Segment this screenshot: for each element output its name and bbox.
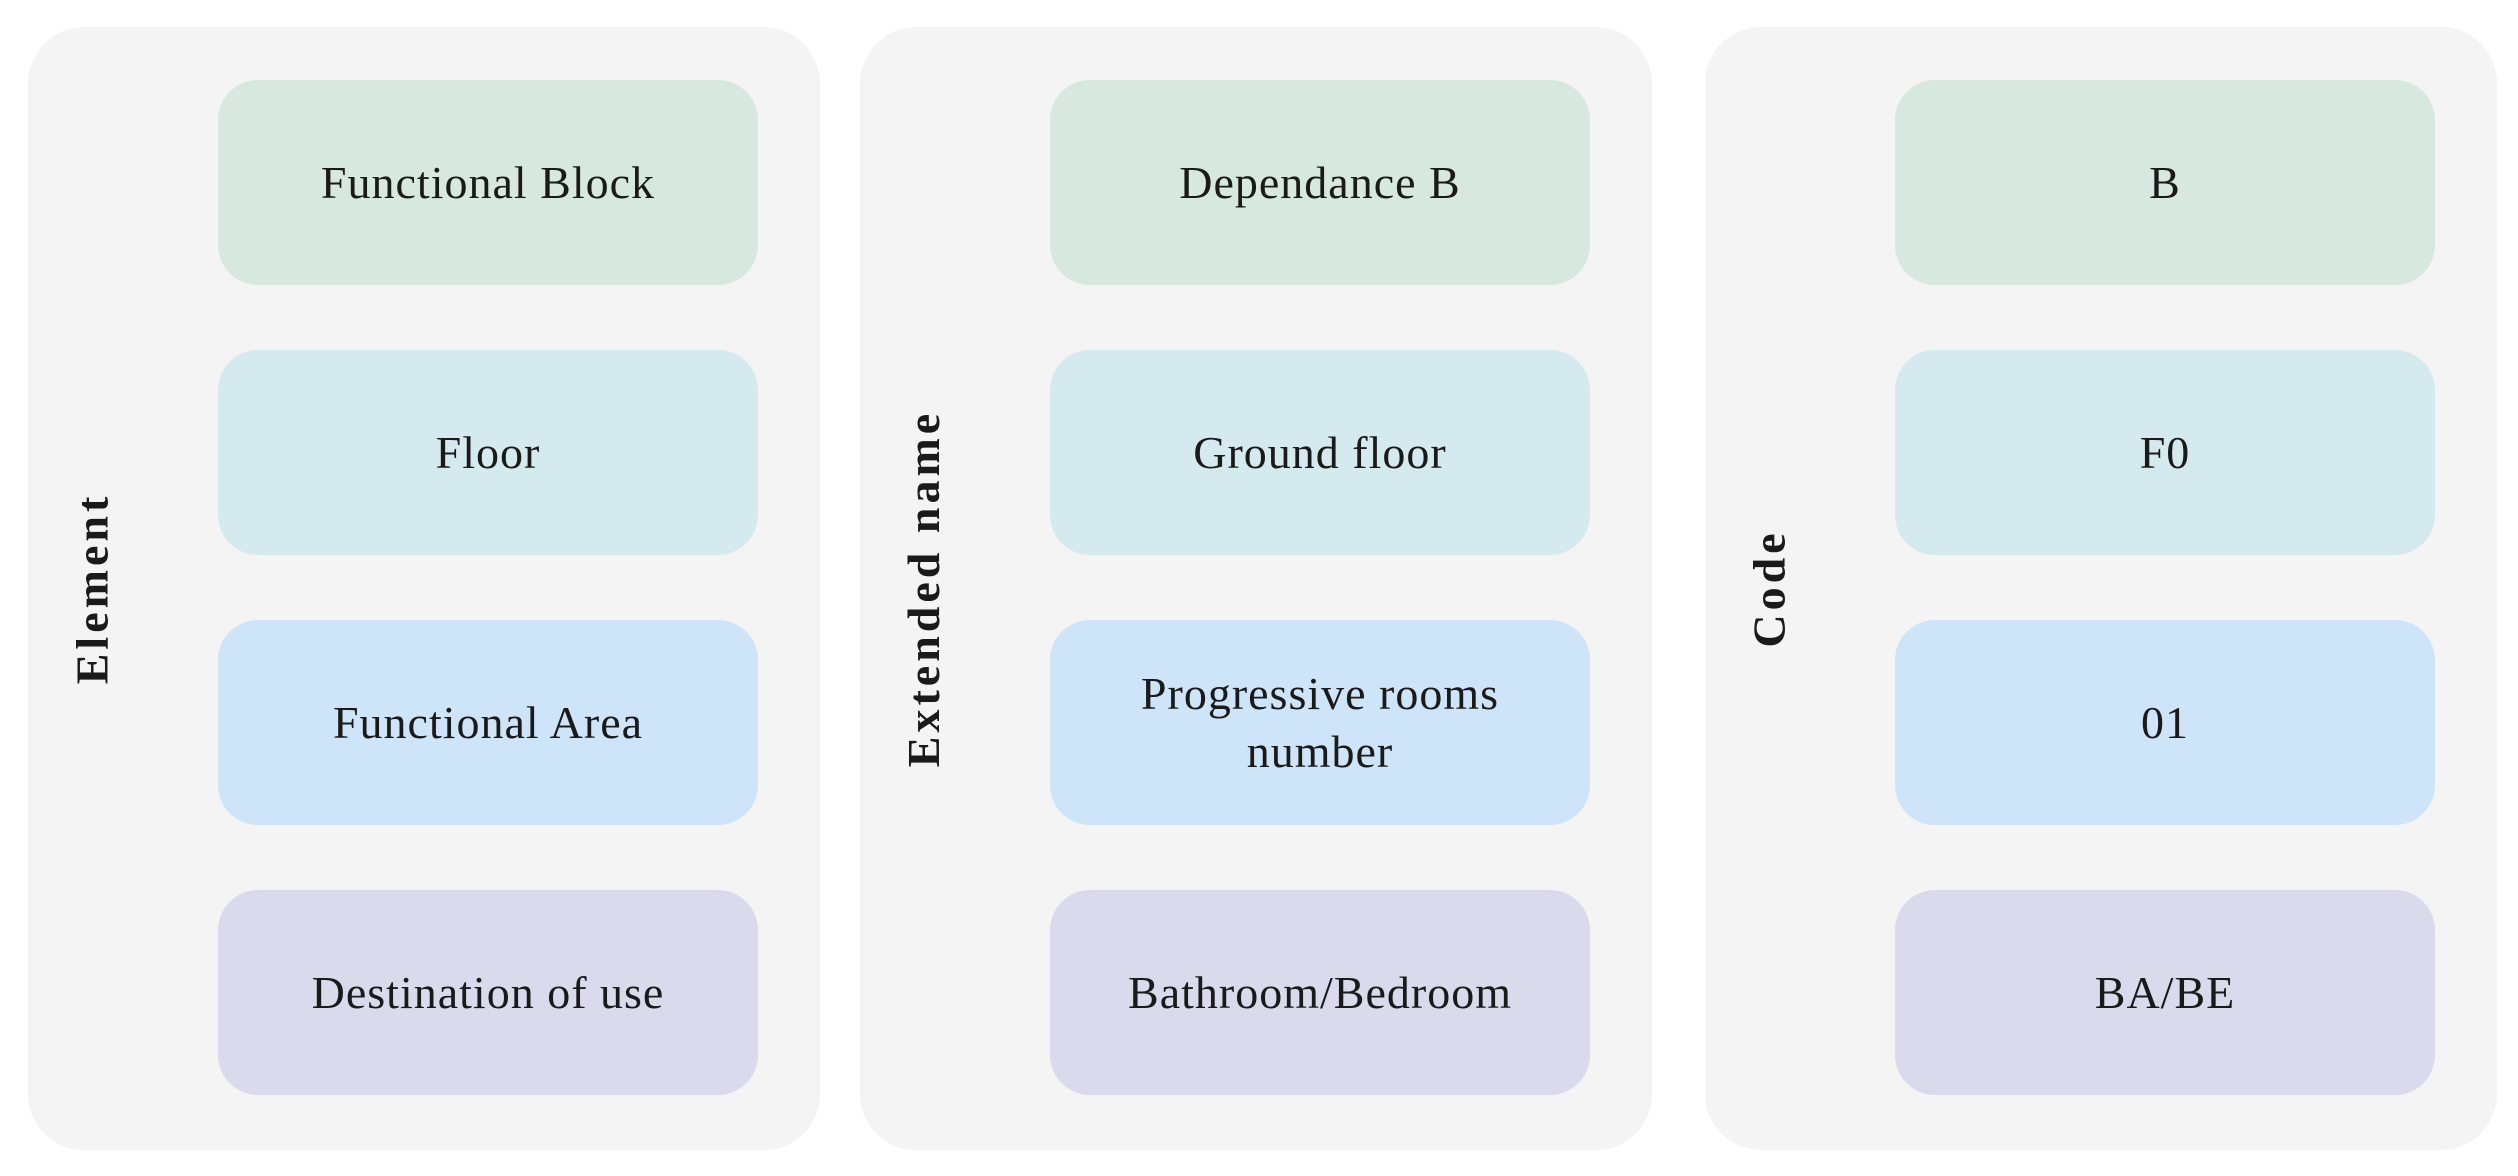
room-coding-figure: Element Functional Block Floor Functiona… bbox=[0, 0, 2518, 1176]
cell-functional-block: Functional Block bbox=[218, 80, 758, 285]
cell-dependance-b: Dependance B bbox=[1050, 80, 1590, 285]
panel-element-cells: Functional Block Floor Functional Area D… bbox=[218, 80, 758, 1095]
panel-extended-name-label-column: Extended name bbox=[860, 27, 988, 1150]
panel-code: Code B F0 01 BA/BE bbox=[1705, 27, 2497, 1150]
cell-progressive-rooms-number: Progressive rooms number bbox=[1050, 620, 1590, 825]
cell-code-ba-be: BA/BE bbox=[1895, 890, 2435, 1095]
panel-element-label-column: Element bbox=[28, 27, 156, 1150]
panel-element: Element Functional Block Floor Functiona… bbox=[28, 27, 820, 1150]
panel-extended-name-cells: Dependance B Ground floor Progressive ro… bbox=[1050, 80, 1590, 1095]
vertical-label-extended-name: Extended name bbox=[898, 410, 951, 767]
vertical-label-element: Element bbox=[66, 493, 119, 685]
cell-destination-of-use: Destination of use bbox=[218, 890, 758, 1095]
cell-ground-floor: Ground floor bbox=[1050, 350, 1590, 555]
cell-bathroom-bedroom: Bathroom/Bedroom bbox=[1050, 890, 1590, 1095]
cell-functional-area: Functional Area bbox=[218, 620, 758, 825]
panel-code-label-column: Code bbox=[1705, 27, 1833, 1150]
panel-extended-name: Extended name Dependance B Ground floor … bbox=[860, 27, 1652, 1150]
panel-code-cells: B F0 01 BA/BE bbox=[1895, 80, 2435, 1095]
cell-floor: Floor bbox=[218, 350, 758, 555]
cell-code-b: B bbox=[1895, 80, 2435, 285]
cell-code-f0: F0 bbox=[1895, 350, 2435, 555]
cell-code-01: 01 bbox=[1895, 620, 2435, 825]
vertical-label-code: Code bbox=[1742, 529, 1795, 647]
